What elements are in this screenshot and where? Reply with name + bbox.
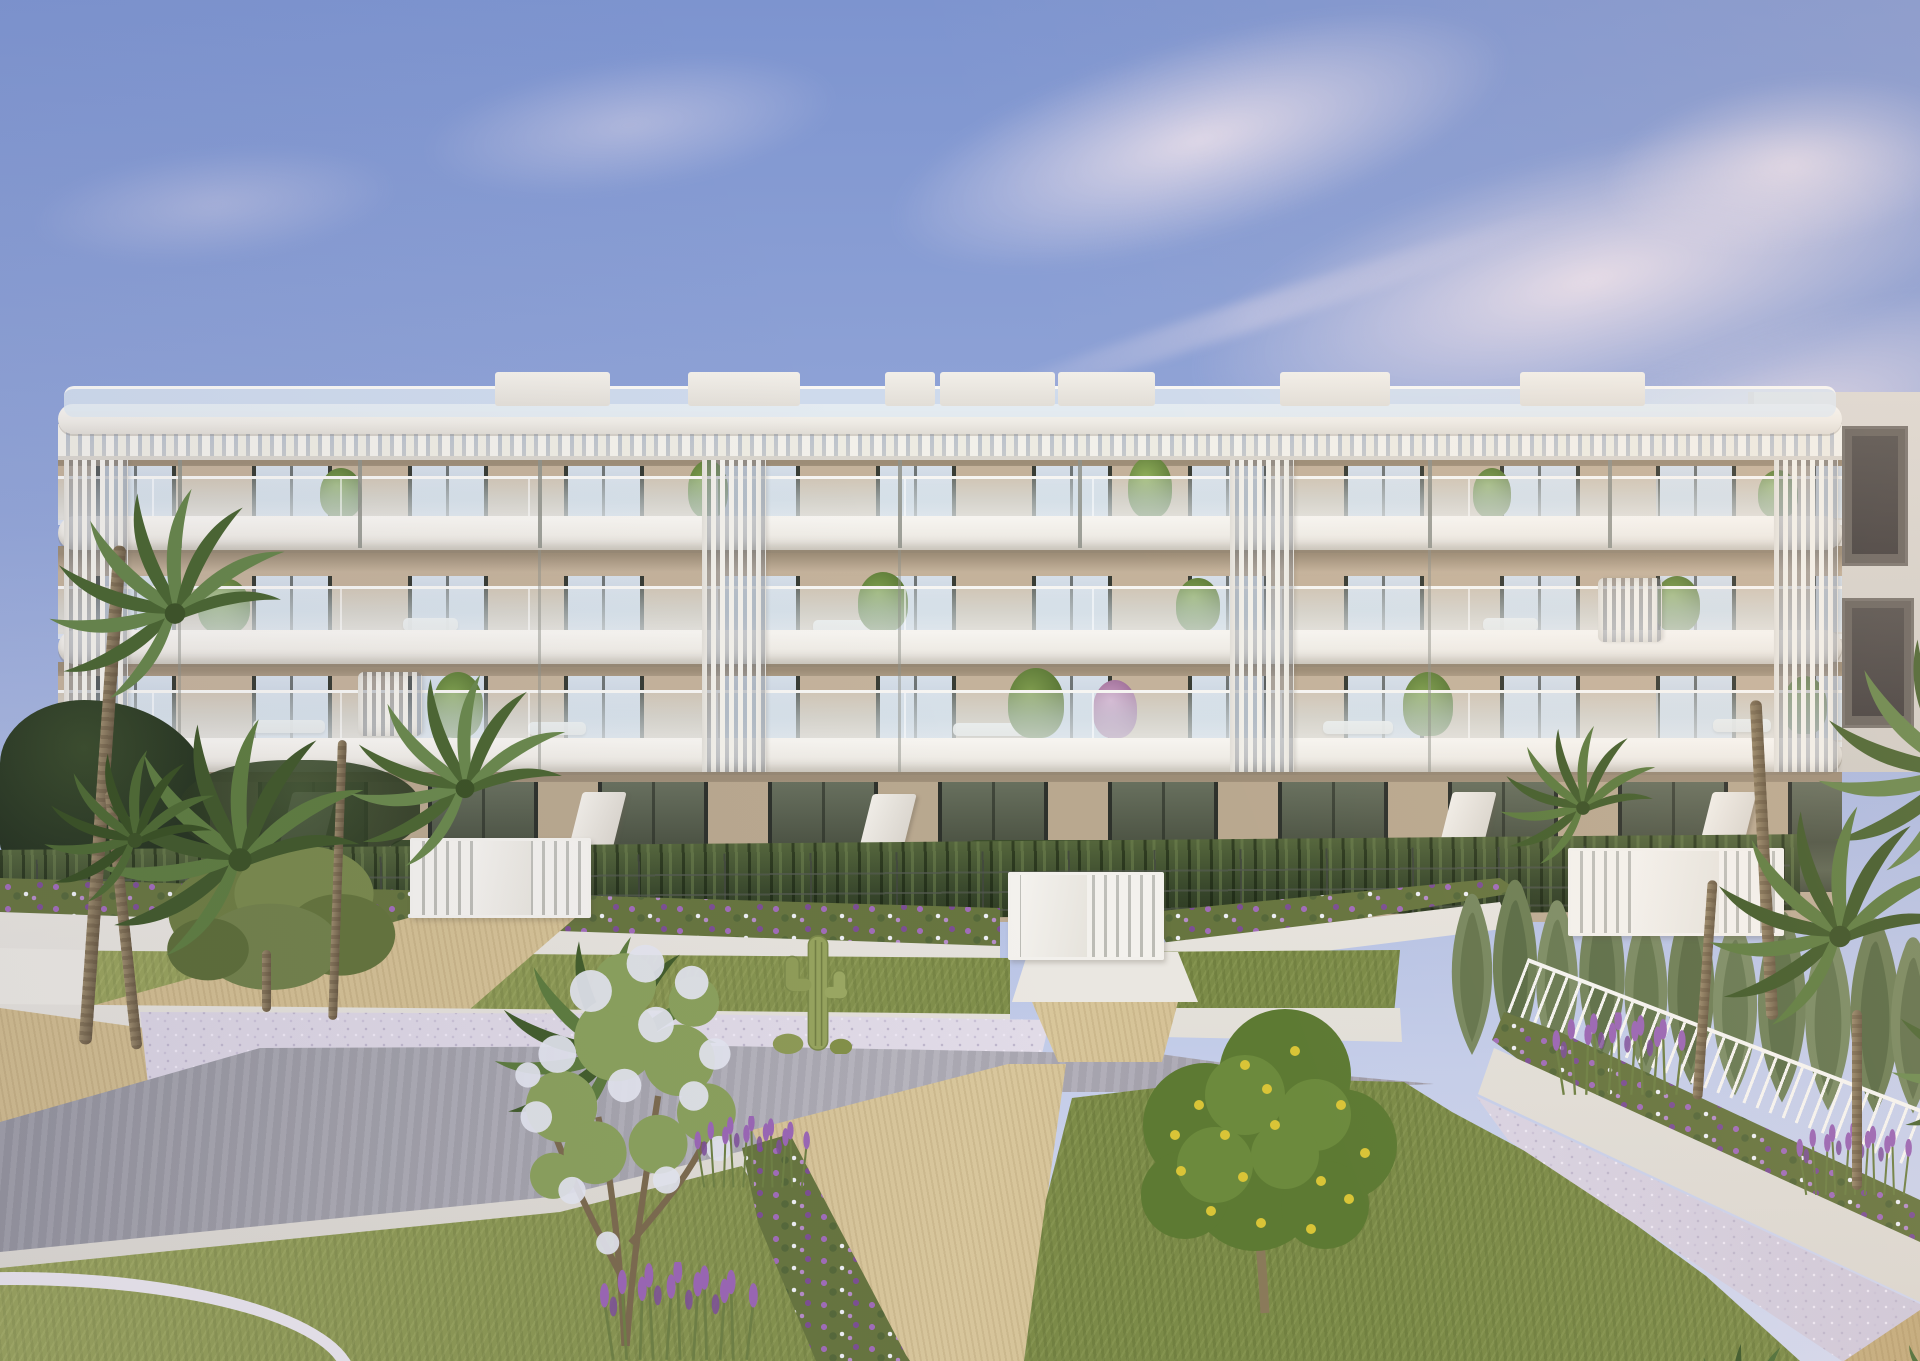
penthouse-volume <box>885 372 935 406</box>
louver-panel <box>1598 578 1662 642</box>
palm-tuft <box>1560 1285 1775 1361</box>
fan-palm <box>0 385 175 563</box>
lavender-cluster <box>688 1115 818 1190</box>
lavender-cluster <box>1545 1012 1695 1097</box>
fan-palm <box>1782 835 1920 1020</box>
penthouse-volume <box>1058 372 1155 406</box>
balcony-slab <box>58 516 1842 550</box>
palm-trunk <box>1852 1010 1862 1190</box>
penthouse-volume <box>940 372 1055 406</box>
penthouse-volume <box>688 372 800 406</box>
scene-apartment-garden-render <box>0 0 1920 1361</box>
gate-center <box>1008 872 1164 960</box>
saguaro-cactus <box>768 932 863 1054</box>
lemon-tree <box>1115 985 1415 1315</box>
olive-trunk <box>262 950 271 1012</box>
fan-palm <box>0 672 135 807</box>
penthouse-volume <box>1520 372 1645 406</box>
penthouse-volume <box>495 372 610 406</box>
penthouse-volume <box>1280 372 1390 406</box>
louver-screen-joint <box>1230 424 1294 772</box>
fan-palm <box>250 575 465 747</box>
fan-palm <box>1428 655 1583 777</box>
fan-palm <box>1695 515 1920 720</box>
balcony-post <box>898 550 901 772</box>
lavender-cluster <box>585 1262 775 1361</box>
louver-screen-joint <box>702 424 766 772</box>
palm-tuft <box>1845 1292 1920 1361</box>
